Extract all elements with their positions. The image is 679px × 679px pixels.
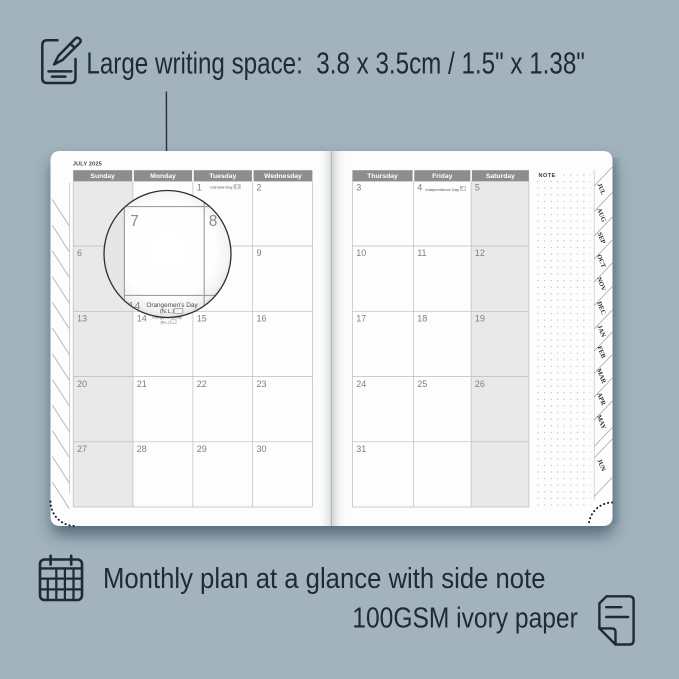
svg-text:15: 15	[197, 314, 207, 324]
svg-text:JULY 2025: JULY 2025	[73, 162, 102, 168]
svg-text:30: 30	[257, 444, 267, 454]
svg-text:Monthly plan at a glance with: Monthly plan at a glance with side note	[103, 563, 546, 595]
svg-text:10: 10	[356, 248, 366, 258]
svg-text:Thursday: Thursday	[367, 173, 398, 180]
svg-text:20: 20	[77, 379, 87, 389]
svg-text:14: 14	[137, 314, 147, 324]
svg-text:Orangemen's Day: Orangemen's Day	[146, 302, 198, 309]
svg-text:Wednesday: Wednesday	[264, 173, 302, 180]
svg-text:31: 31	[356, 444, 366, 454]
svg-text:23: 23	[257, 379, 267, 389]
svg-text:4: 4	[417, 183, 422, 193]
svg-text:2: 2	[257, 183, 262, 193]
svg-text:(N.L.): (N.L.)	[160, 309, 175, 315]
svg-text:12: 12	[475, 248, 485, 258]
svg-text:24: 24	[356, 379, 366, 389]
svg-text:19: 19	[475, 314, 485, 324]
svg-text:9: 9	[257, 248, 262, 258]
svg-text:11: 11	[417, 248, 426, 258]
svg-text:100GSM ivory paper: 100GSM ivory paper	[352, 603, 578, 635]
svg-text:28: 28	[137, 444, 147, 454]
svg-text:3: 3	[356, 183, 361, 193]
svg-text:8: 8	[209, 213, 218, 230]
svg-text:7: 7	[130, 213, 139, 230]
svg-text:NOTE: NOTE	[539, 173, 556, 179]
svg-text:29: 29	[197, 444, 207, 454]
svg-text:13: 13	[77, 314, 87, 324]
svg-text:1: 1	[197, 183, 202, 193]
svg-text:Large writing space: 3.8 x 3.: Large writing space: 3.8 x 3.5cm / 1.5" …	[86, 46, 585, 80]
svg-text:26: 26	[475, 379, 485, 389]
svg-text:6: 6	[77, 248, 82, 258]
svg-text:Monday: Monday	[150, 173, 176, 180]
svg-text:25: 25	[417, 379, 427, 389]
svg-text:21: 21	[137, 379, 147, 389]
svg-text:Canada Day: Canada Day	[210, 184, 232, 189]
svg-text:16: 16	[257, 314, 267, 324]
svg-text:5: 5	[475, 183, 480, 193]
svg-text:Sunday: Sunday	[90, 173, 115, 180]
svg-text:27: 27	[77, 444, 87, 454]
svg-text:Friday: Friday	[432, 173, 453, 180]
svg-text:22: 22	[197, 379, 207, 389]
svg-text:17: 17	[356, 314, 366, 324]
svg-text:18: 18	[417, 314, 427, 324]
svg-text:Independence Day: Independence Day	[425, 187, 459, 192]
svg-text:Saturday: Saturday	[486, 173, 515, 180]
svg-text:Tuesday: Tuesday	[209, 173, 236, 180]
svg-text:(N.L.): (N.L.)	[161, 320, 170, 324]
